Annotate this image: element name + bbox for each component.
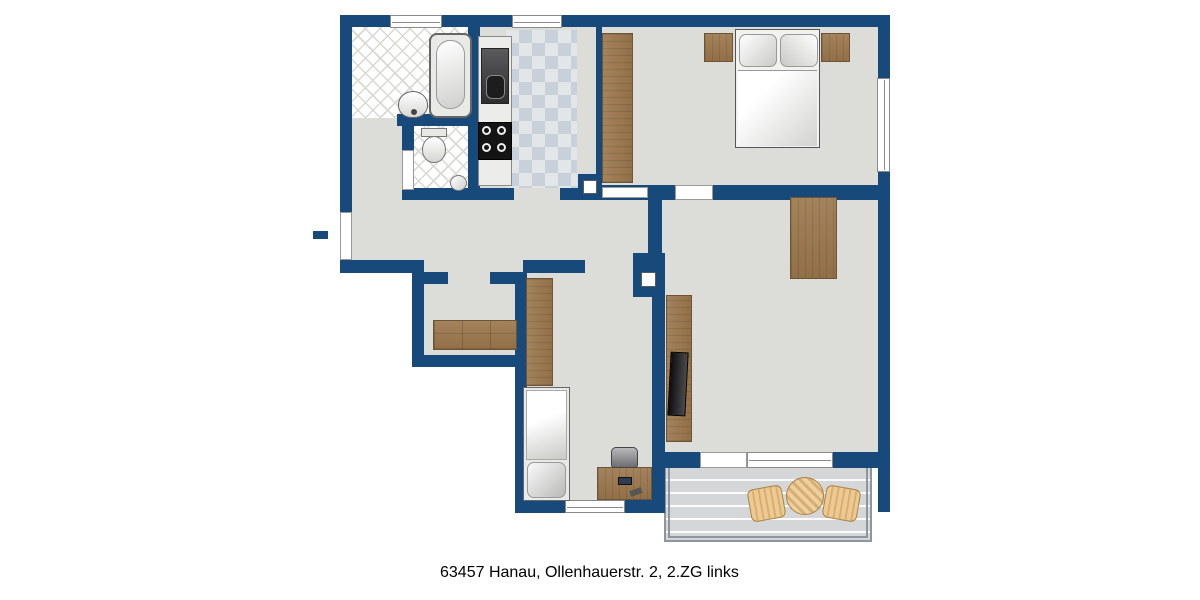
entrance-door-leaf (340, 212, 352, 260)
wall (878, 27, 890, 78)
desk-icon (597, 467, 652, 500)
wall (833, 452, 878, 468)
entrance-arrow-icon (313, 231, 328, 239)
schlafen-door-opening (675, 185, 713, 200)
dining-table-icon (790, 197, 837, 279)
bathtub-icon (429, 33, 472, 118)
tv-icon (667, 352, 688, 417)
address-caption: 63457 Hanau, Ollenhauerstr. 2, 2.ZG link… (440, 564, 960, 582)
wardrobe-icon (602, 33, 633, 183)
nightstand-icon (821, 33, 850, 62)
wall-niche (602, 187, 648, 198)
wall (652, 452, 700, 468)
wall (878, 172, 890, 512)
wall (652, 295, 665, 512)
wall (480, 188, 514, 200)
corner-washbasin-icon (450, 175, 467, 191)
window-wohnen (747, 452, 833, 468)
wall (412, 260, 424, 367)
sofa-icon (823, 301, 874, 414)
dining-chair-icon (757, 201, 788, 234)
desk-chair-icon (611, 447, 638, 468)
window-kueche (512, 15, 562, 28)
nightstand-icon (704, 33, 733, 62)
wall (442, 15, 512, 27)
wall (560, 188, 580, 200)
floor-plan: Bad WC Küche Schlafen Flur Abstell. Kind… (0, 0, 1200, 600)
shaft-box (641, 272, 656, 287)
washbasin-icon (398, 91, 428, 118)
toilet-bowl-icon (422, 136, 446, 163)
wc-door-leaf (402, 150, 414, 190)
wall (424, 272, 448, 284)
wall (648, 200, 662, 255)
wardrobe-icon (526, 278, 553, 386)
window-bad (390, 15, 442, 28)
armchair-icon (724, 358, 773, 411)
wall (402, 126, 414, 150)
stove-icon (478, 122, 512, 160)
shelf-icon (433, 320, 517, 350)
wall (340, 15, 390, 27)
loggia-table-icon (786, 477, 824, 515)
dining-chair-icon (757, 241, 788, 274)
loggia-chair-icon (746, 484, 786, 523)
wall (340, 27, 352, 212)
wall (562, 15, 890, 27)
loggia-chair-icon (821, 484, 861, 523)
wall (523, 260, 585, 273)
coffee-table-icon (783, 317, 817, 393)
double-bed-icon (735, 29, 820, 148)
window-kind (565, 500, 625, 513)
armchair-icon (724, 299, 773, 352)
shaft-box (583, 180, 597, 194)
floor-kueche-tiles (506, 30, 577, 188)
loggia-door-opening (700, 452, 747, 468)
dining-chair-icon (839, 241, 870, 274)
wall (515, 500, 565, 513)
sink-unit-icon (481, 48, 509, 104)
dining-chair-icon (839, 201, 870, 234)
window-schlafen (877, 78, 890, 172)
wall (412, 355, 527, 367)
single-bed-icon (523, 387, 570, 501)
